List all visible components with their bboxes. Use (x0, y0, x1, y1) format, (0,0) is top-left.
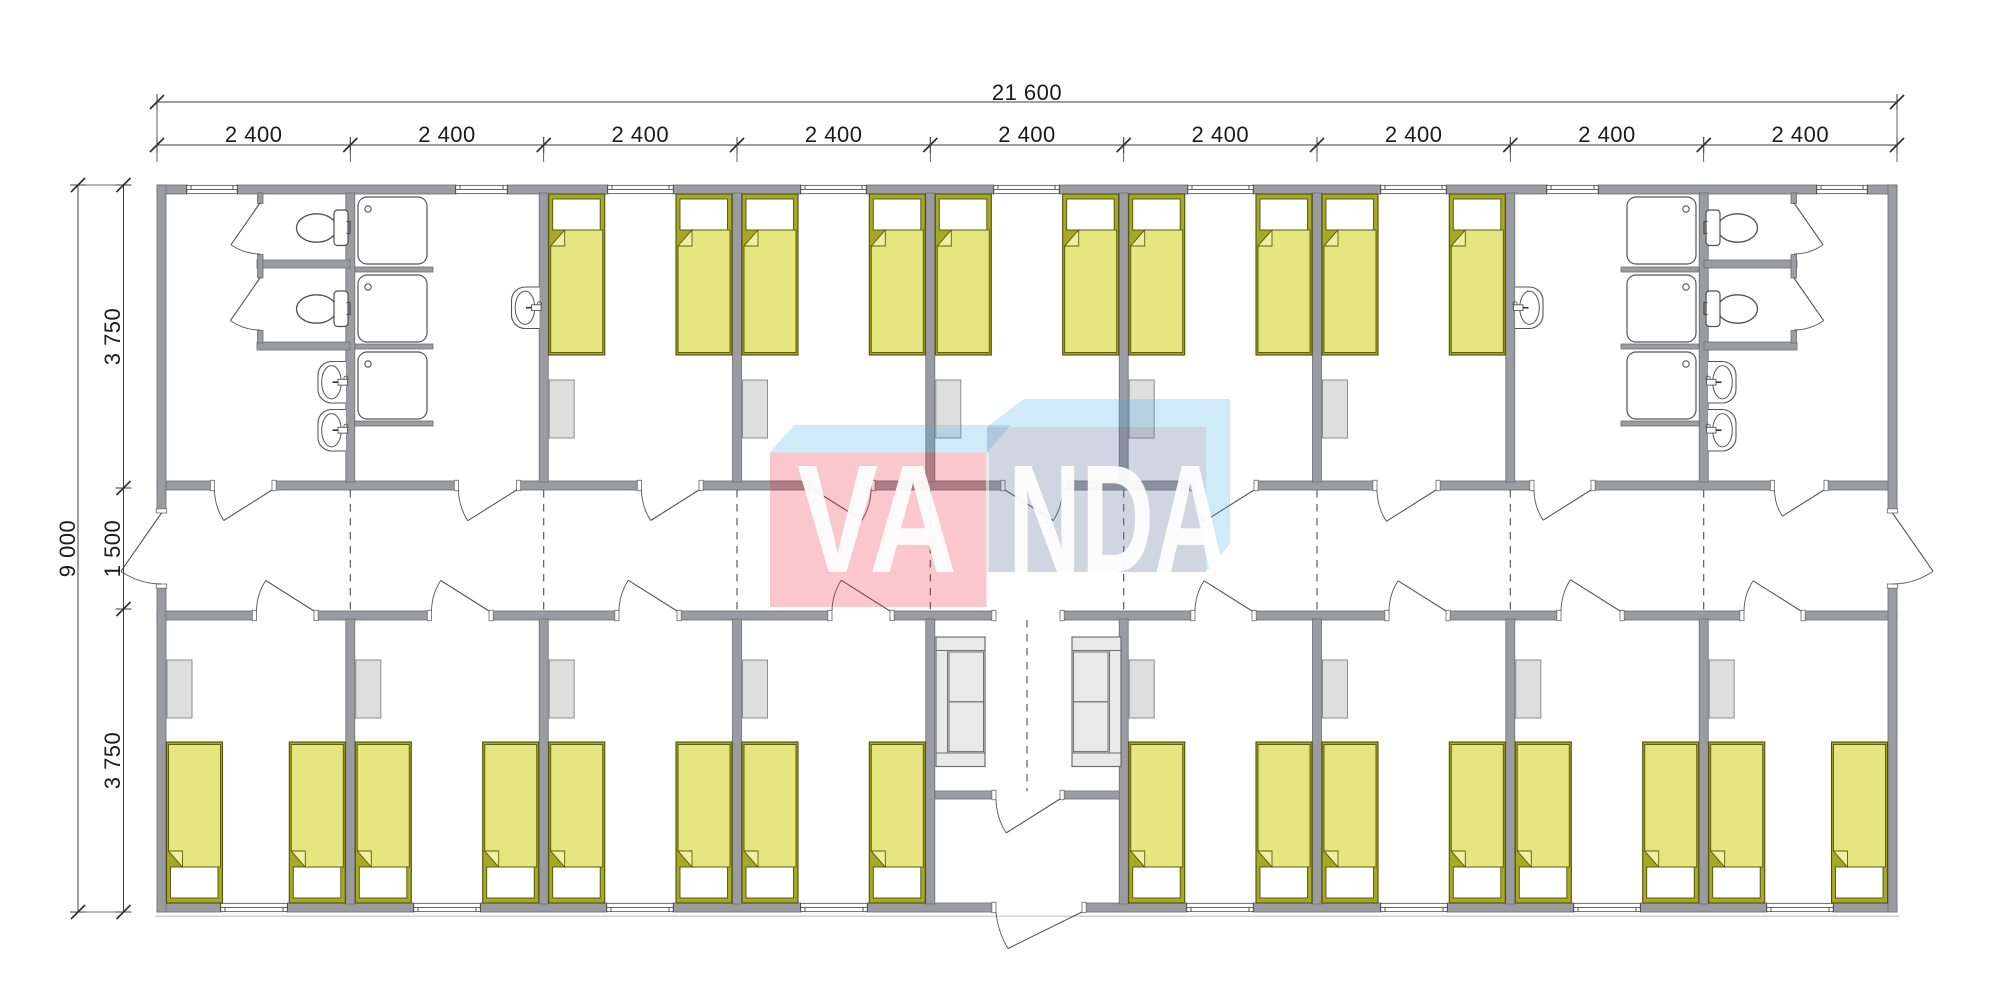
svg-text:2 400: 2 400 (1772, 122, 1830, 147)
svg-text:3 750: 3 750 (100, 732, 125, 790)
svg-text:2 400: 2 400 (225, 122, 283, 147)
svg-text:3 750: 3 750 (100, 308, 125, 366)
svg-text:2 400: 2 400 (612, 122, 670, 147)
svg-text:2 400: 2 400 (1192, 122, 1250, 147)
svg-text:2 400: 2 400 (998, 122, 1056, 147)
svg-text:1 500: 1 500 (100, 520, 125, 578)
svg-text:2 400: 2 400 (805, 122, 863, 147)
svg-text:VA: VA (797, 433, 957, 605)
svg-text:9 000: 9 000 (55, 520, 80, 578)
svg-text:2 400: 2 400 (418, 122, 476, 147)
svg-text:NDA: NDA (1008, 433, 1227, 605)
svg-text:2 400: 2 400 (1385, 122, 1443, 147)
svg-text:2 400: 2 400 (1578, 122, 1636, 147)
svg-text:21 600: 21 600 (992, 80, 1062, 105)
